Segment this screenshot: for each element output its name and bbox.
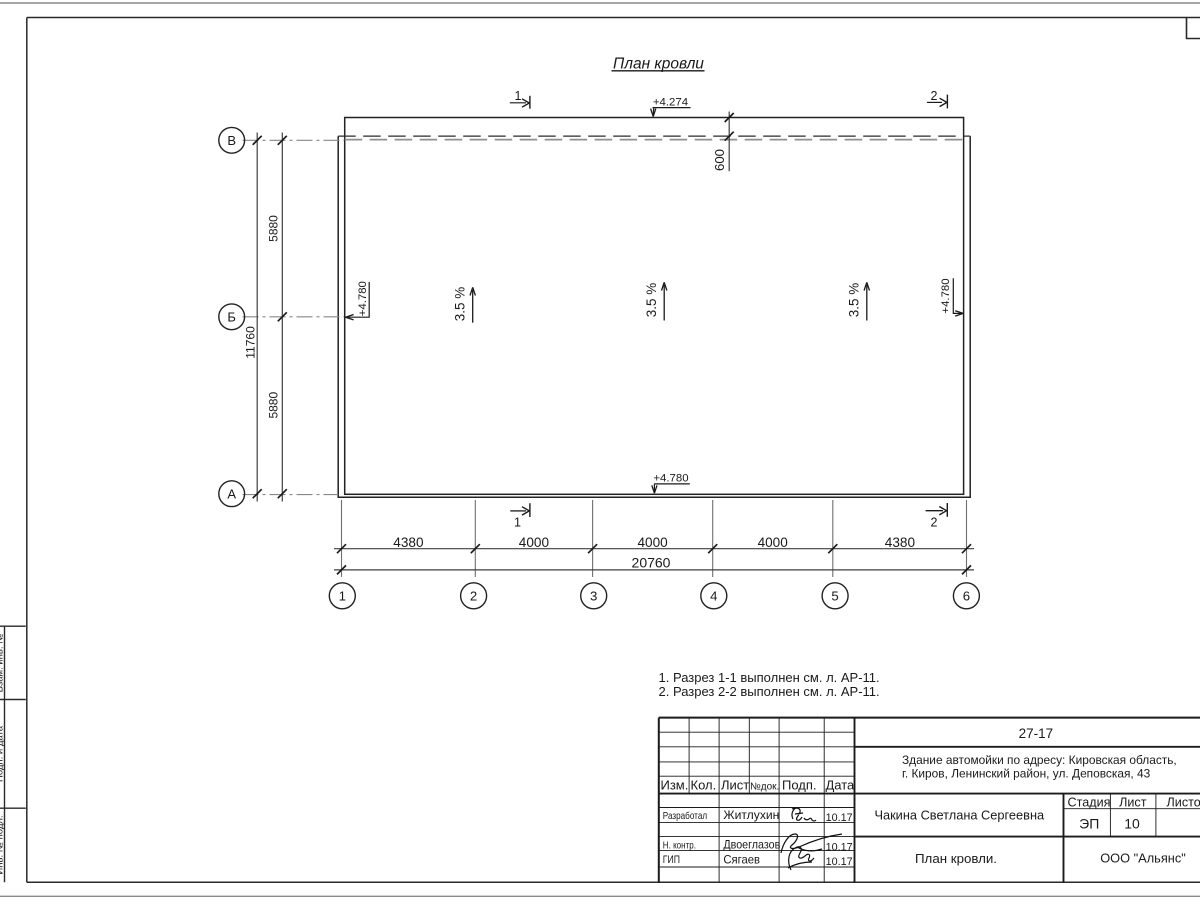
- svg-text:5: 5: [831, 589, 838, 604]
- svg-text:Житлухин: Житлухин: [723, 808, 779, 822]
- svg-text:+4.780: +4.780: [357, 281, 369, 316]
- svg-text:А: А: [227, 486, 236, 501]
- svg-text:2. Разрез 2-2 выполнен см. л.: 2. Разрез 2-2 выполнен см. л. АР-11.: [659, 684, 880, 699]
- svg-text:4000: 4000: [519, 535, 550, 550]
- svg-text:27-17: 27-17: [1019, 726, 1054, 741]
- svg-text:3: 3: [590, 589, 597, 604]
- svg-text:600: 600: [712, 149, 727, 171]
- svg-text:10.17: 10.17: [826, 812, 853, 824]
- svg-text:4000: 4000: [758, 535, 789, 550]
- svg-text:2: 2: [931, 89, 938, 103]
- svg-text:3.5 %: 3.5 %: [847, 283, 862, 318]
- svg-text:2: 2: [931, 516, 938, 530]
- svg-text:Листов: Листов: [1167, 796, 1200, 810]
- svg-text:4000: 4000: [637, 535, 668, 550]
- svg-text:Б: Б: [227, 310, 236, 325]
- svg-text:ООО "Альянс": ООО "Альянс": [1100, 850, 1186, 865]
- svg-text:Здание автомойки по адресу: Ки: Здание автомойки по адресу: Кировская об…: [902, 753, 1177, 767]
- svg-text:1: 1: [339, 589, 346, 604]
- svg-text:3.5 %: 3.5 %: [453, 287, 468, 322]
- svg-text:1: 1: [515, 89, 522, 103]
- svg-text:4380: 4380: [393, 535, 424, 550]
- svg-text:Чакина Светлана Сергеевна: Чакина Светлана Сергеевна: [874, 807, 1045, 822]
- svg-text:Стадия: Стадия: [1068, 796, 1111, 810]
- svg-text:Подп.: Подп.: [782, 778, 817, 793]
- svg-text:2: 2: [470, 589, 477, 604]
- svg-text:ЭП: ЭП: [1079, 815, 1099, 831]
- svg-text:Двоеглазов: Двоеглазов: [723, 838, 780, 852]
- svg-text:План кровли.: План кровли.: [915, 851, 997, 866]
- svg-text:1. Разрез 1-1 выполнен см. л.: 1. Разрез 1-1 выполнен см. л. АР-11.: [659, 670, 880, 685]
- svg-text:11760: 11760: [244, 326, 258, 359]
- svg-text:Взам. инв. №: Взам. инв. №: [0, 634, 5, 693]
- svg-text:+4.780: +4.780: [653, 473, 688, 485]
- svg-text:10.17: 10.17: [826, 856, 853, 868]
- svg-text:Разработал: Разработал: [663, 810, 707, 822]
- svg-text:Изм.: Изм.: [661, 778, 689, 793]
- svg-text:20760: 20760: [632, 555, 671, 571]
- svg-text:10.17: 10.17: [826, 842, 853, 854]
- svg-text:Лист: Лист: [1119, 796, 1147, 810]
- svg-text:В: В: [227, 133, 236, 148]
- svg-text:Инв. № подл.: Инв. № подл.: [0, 815, 5, 874]
- svg-text:ГИП: ГИП: [663, 854, 680, 866]
- svg-text:План кровли: План кровли: [613, 56, 704, 73]
- svg-text:Кол.: Кол.: [691, 778, 717, 793]
- svg-text:Подп. и дата: Подп. и дата: [0, 725, 5, 782]
- svg-text:Сягаев: Сягаев: [723, 853, 760, 867]
- svg-text:6: 6: [963, 589, 970, 604]
- svg-text:4: 4: [710, 589, 717, 604]
- svg-text:5880: 5880: [267, 392, 281, 419]
- svg-text:3.5 %: 3.5 %: [644, 283, 659, 318]
- svg-text:Лист: Лист: [721, 778, 749, 793]
- svg-text:Дата: Дата: [826, 778, 856, 793]
- svg-text:1: 1: [514, 516, 521, 530]
- svg-text:10: 10: [1124, 815, 1140, 831]
- svg-text:+4.780: +4.780: [940, 278, 952, 313]
- svg-text:Н. контр.: Н. контр.: [663, 840, 696, 852]
- svg-text:№док.: №док.: [750, 782, 779, 793]
- svg-text:5880: 5880: [267, 215, 281, 242]
- svg-text:4380: 4380: [885, 535, 916, 550]
- svg-text:г. Киров, Ленинский район, ул.: г. Киров, Ленинский район, ул. Деповская…: [902, 767, 1151, 781]
- svg-text:+4.274: +4.274: [653, 97, 688, 109]
